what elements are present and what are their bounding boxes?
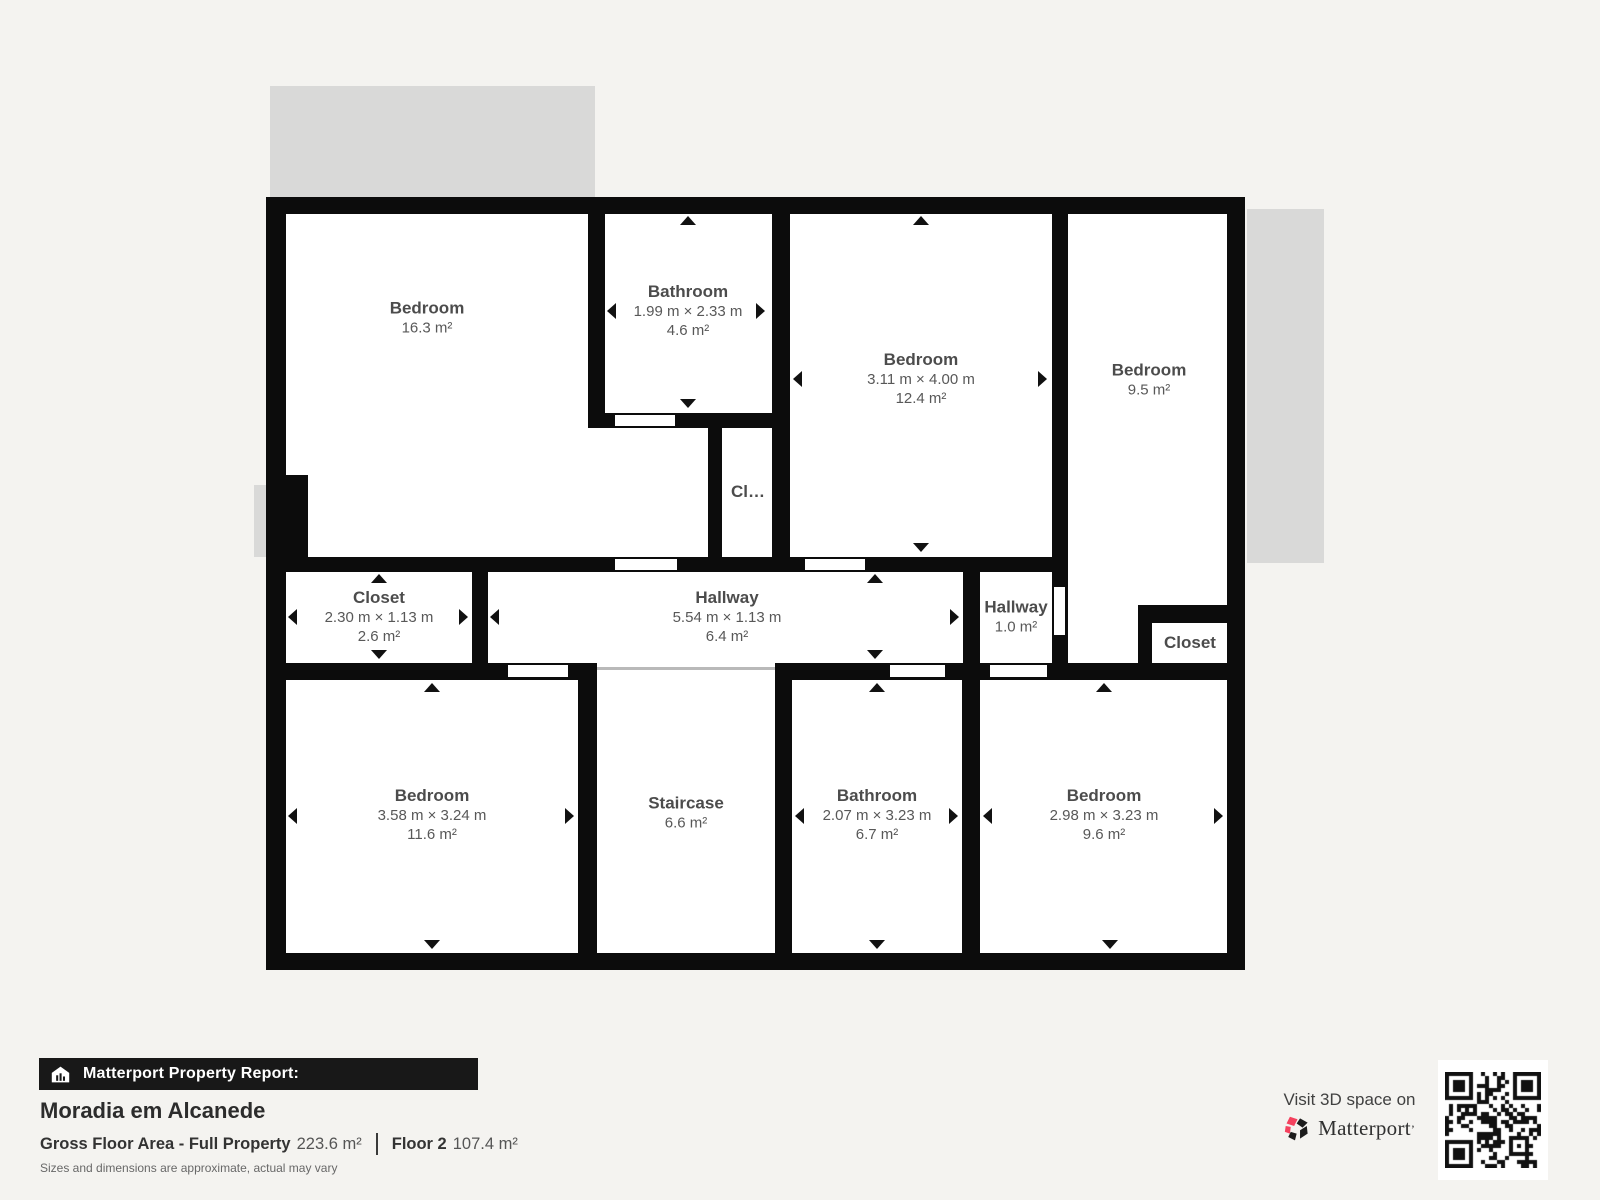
room-area: 6.6 m²	[648, 814, 724, 833]
dimension-arrow-up-icon	[867, 574, 883, 583]
report-header-bar: Matterport Property Report:	[39, 1058, 478, 1090]
room-name: Bedroom	[1112, 361, 1187, 381]
room-area: 6.7 m²	[823, 825, 932, 844]
dimension-arrow-right-icon	[565, 808, 574, 824]
dimension-arrow-right-icon	[756, 303, 765, 319]
room-label-closet-small: Cl…	[731, 482, 765, 502]
room-name: Bathroom	[634, 282, 743, 302]
dimension-arrow-down-icon	[913, 543, 929, 552]
room-label-hallway-2: Hallway 1.0 m²	[984, 598, 1047, 637]
room-dimensions: 2.30 m × 1.13 m	[325, 608, 434, 627]
dimension-arrow-left-icon	[795, 808, 804, 824]
dimension-arrow-left-icon	[607, 303, 616, 319]
dimension-arrow-right-icon	[459, 609, 468, 625]
dimension-arrow-down-icon	[371, 650, 387, 659]
matterport-brand: Matterport’	[1262, 1115, 1437, 1142]
dimension-arrow-left-icon	[793, 371, 802, 387]
dimension-arrow-down-icon	[869, 940, 885, 949]
room-area: 2.6 m²	[325, 627, 434, 646]
room-label-hallway-1: Hallway 5.54 m × 1.13 m 6.4 m²	[673, 588, 782, 646]
stats-divider	[376, 1133, 378, 1155]
visit-3d-label: Visit 3D space on	[1262, 1090, 1437, 1110]
terrace-deck-right	[1247, 209, 1324, 563]
dimension-arrow-left-icon	[490, 609, 499, 625]
room-dimensions: 5.54 m × 1.13 m	[673, 608, 782, 627]
qr-code	[1438, 1060, 1548, 1180]
room-label-bathroom-1: Bathroom 1.99 m × 2.33 m 4.6 m²	[634, 282, 743, 340]
room-bedroom-1-extension	[588, 428, 708, 557]
room-label-staircase: Staircase 6.6 m²	[648, 794, 724, 833]
room-name: Bedroom	[378, 786, 487, 806]
room-bedroom-1	[286, 214, 588, 557]
room-name: Hallway	[984, 598, 1047, 618]
room-dimensions: 2.98 m × 3.23 m	[1050, 806, 1159, 825]
dimension-arrow-right-icon	[949, 808, 958, 824]
house-chart-icon	[51, 1065, 70, 1084]
gross-area-value: 223.6 m²	[297, 1135, 362, 1154]
room-label-bedroom-3: Bedroom 9.5 m²	[1112, 361, 1187, 400]
dimension-arrow-up-icon	[424, 683, 440, 692]
disclaimer-text: Sizes and dimensions are approximate, ac…	[40, 1161, 337, 1175]
dimension-arrow-right-icon	[1214, 808, 1223, 824]
dimension-arrow-up-icon	[1096, 683, 1112, 692]
door-opening	[990, 665, 1047, 677]
gross-area-label: Gross Floor Area - Full Property	[40, 1135, 291, 1154]
room-name: Staircase	[648, 794, 724, 814]
room-area: 9.6 m²	[1050, 825, 1159, 844]
matterport-floor-plan-report: { "plan": { "rooms": [ {"name": "Bedroom…	[0, 0, 1600, 1200]
room-area: 16.3 m²	[390, 319, 465, 338]
staircase-open-edge	[597, 667, 775, 670]
room-name: Bedroom	[1050, 786, 1159, 806]
dimension-arrow-up-icon	[371, 574, 387, 583]
matterport-wordmark: Matterport	[1318, 1116, 1411, 1141]
room-name: Closet	[1164, 633, 1216, 653]
dimension-arrow-up-icon	[680, 216, 696, 225]
floor-area-value: 107.4 m²	[453, 1135, 518, 1154]
trademark-mark: ’	[1411, 1122, 1415, 1136]
room-name: Cl…	[731, 482, 765, 502]
room-label-closet-1: Closet 2.30 m × 1.13 m 2.6 m²	[325, 588, 434, 646]
room-dimensions: 2.07 m × 3.23 m	[823, 806, 932, 825]
room-area: 1.0 m²	[984, 618, 1047, 637]
dimension-arrow-right-icon	[1038, 371, 1047, 387]
room-area: 11.6 m²	[378, 825, 487, 844]
room-area: 6.4 m²	[673, 627, 782, 646]
matterport-pinwheel-icon	[1284, 1115, 1311, 1142]
door-opening	[805, 559, 865, 570]
area-stats: Gross Floor Area - Full Property 223.6 m…	[40, 1133, 518, 1155]
dimension-arrow-up-icon	[913, 216, 929, 225]
room-area: 4.6 m²	[634, 321, 743, 340]
room-name: Bedroom	[867, 350, 975, 370]
room-area: 12.4 m²	[867, 389, 975, 408]
door-opening	[1054, 587, 1065, 635]
door-opening	[615, 559, 677, 570]
room-dimensions: 3.58 m × 3.24 m	[378, 806, 487, 825]
dimension-arrow-down-icon	[867, 650, 883, 659]
dimension-arrow-down-icon	[1102, 940, 1118, 949]
dimension-arrow-up-icon	[869, 683, 885, 692]
qr-code-pattern	[1445, 1072, 1541, 1168]
room-dimensions: 1.99 m × 2.33 m	[634, 302, 743, 321]
room-bedroom-3-extension	[1068, 605, 1138, 663]
room-label-bedroom-2: Bedroom 3.11 m × 4.00 m 12.4 m²	[867, 350, 975, 408]
door-opening	[890, 665, 945, 677]
room-label-bathroom-2: Bathroom 2.07 m × 3.23 m 6.7 m²	[823, 786, 932, 844]
room-label-bedroom-1: Bedroom 16.3 m²	[390, 299, 465, 338]
room-bedroom-3	[1068, 214, 1227, 605]
floor-label: Floor 2	[392, 1135, 447, 1154]
room-name: Hallway	[673, 588, 782, 608]
dimension-arrow-left-icon	[288, 609, 297, 625]
dimension-arrow-left-icon	[983, 808, 992, 824]
dimension-arrow-right-icon	[950, 609, 959, 625]
door-opening	[508, 665, 568, 677]
door-opening	[615, 415, 675, 426]
dimension-arrow-down-icon	[424, 940, 440, 949]
room-name: Bedroom	[390, 299, 465, 319]
room-area: 9.5 m²	[1112, 381, 1187, 400]
report-label: Matterport Property Report:	[83, 1065, 299, 1083]
terrace-deck-top	[270, 86, 595, 200]
wall-pillar	[286, 475, 308, 557]
room-label-bedroom-4: Bedroom 3.58 m × 3.24 m 11.6 m²	[378, 786, 487, 844]
room-label-closet-right: Closet	[1164, 633, 1216, 653]
room-name: Bathroom	[823, 786, 932, 806]
room-name: Closet	[325, 588, 434, 608]
property-title: Moradia em Alcanede	[40, 1098, 265, 1124]
room-label-bedroom-5: Bedroom 2.98 m × 3.23 m 9.6 m²	[1050, 786, 1159, 844]
room-dimensions: 3.11 m × 4.00 m	[867, 370, 975, 389]
dimension-arrow-left-icon	[288, 808, 297, 824]
dimension-arrow-down-icon	[680, 399, 696, 408]
